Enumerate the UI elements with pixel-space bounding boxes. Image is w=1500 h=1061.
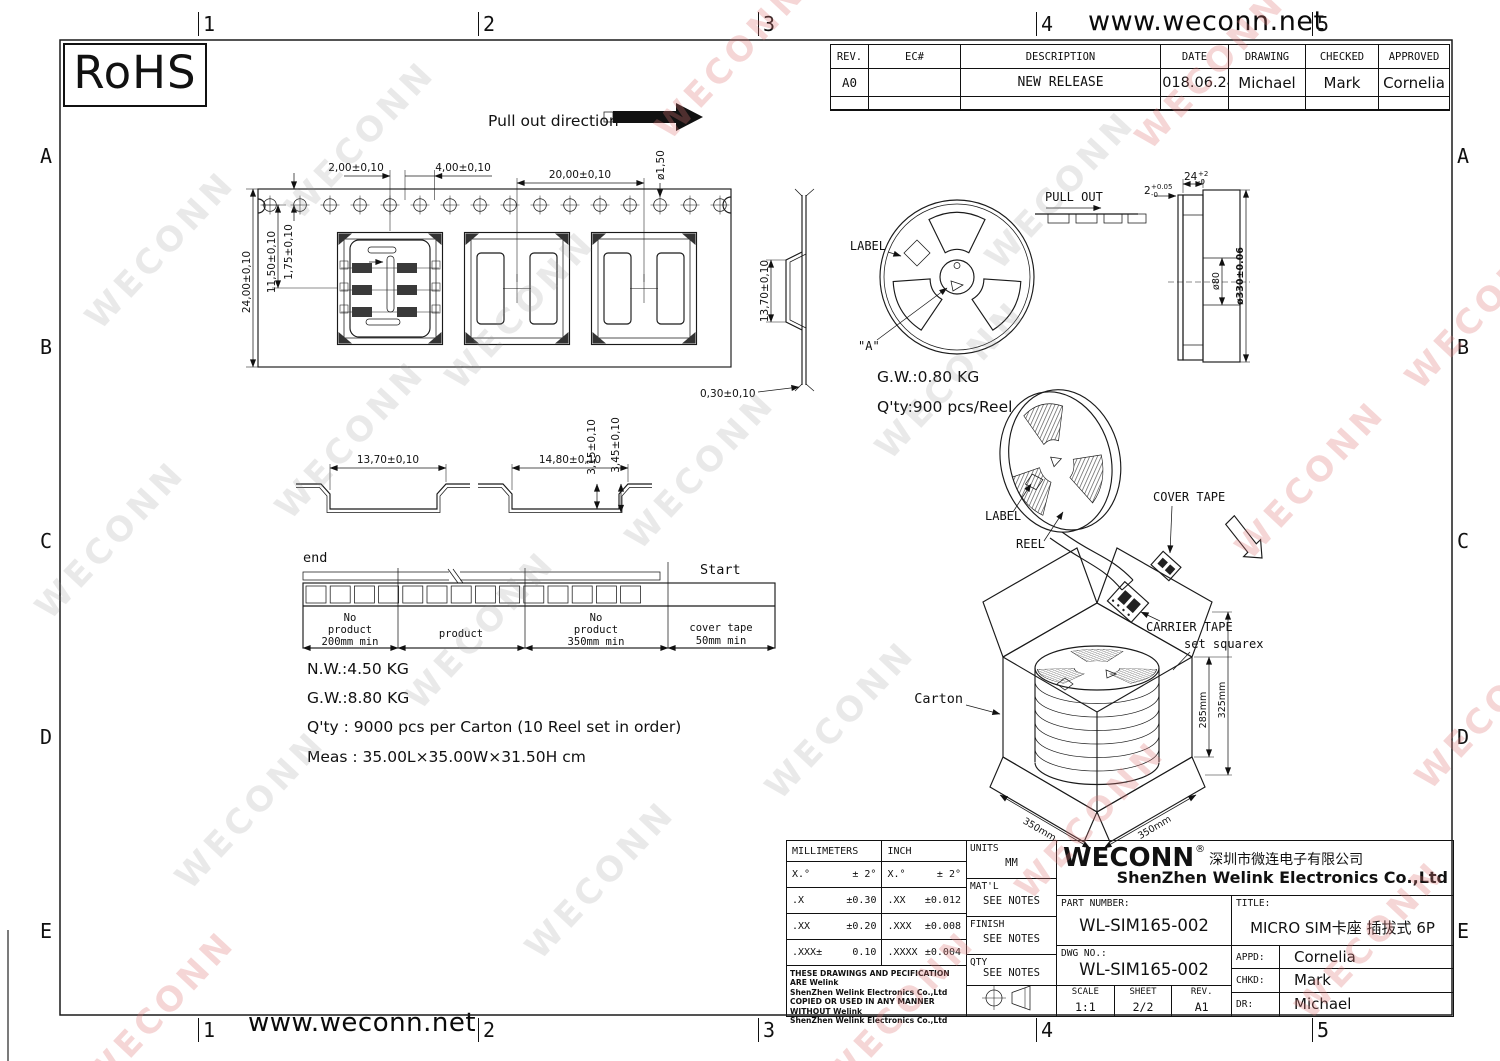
spec-column: UNITSMM MAT'LSEE NOTES FINISHSEE NOTES Q… <box>967 841 1057 1016</box>
projection-symbol-cell <box>967 986 1056 1014</box>
company-name-en: ShenZhen Welink Electronics Co.,Ltd <box>1063 868 1448 887</box>
grid-col-3-top: 3 <box>758 12 775 36</box>
description-value: NEW RELEASE <box>961 69 1161 97</box>
company-name-cn: 深圳市微连电子有限公司 <box>1209 849 1363 869</box>
scale-label: SCALE <box>1057 987 1114 997</box>
tol-cell: .XXX± <box>792 947 822 958</box>
ec-header: EC# <box>869 45 961 69</box>
part-number-label: PART NUMBER: <box>1061 898 1130 909</box>
dr-label: DR: <box>1232 993 1280 1016</box>
sheet-label: SHEET <box>1115 987 1172 997</box>
tol-cell: 0.10 <box>852 947 876 958</box>
grid-col-1-bottom: 1 <box>198 1018 215 1042</box>
grid-row-e-left: E <box>40 919 52 943</box>
tol-cell: ± 2° <box>937 869 961 880</box>
title-block: MILLIMETERS INCH X.°± 2° X.°± 2° .X±0.30… <box>786 840 1454 1017</box>
tol-cell: ±0.012 <box>925 895 961 906</box>
tol-cell: .XX <box>887 895 905 906</box>
tol-cell: .XXXX <box>887 947 917 958</box>
tol-cell: .X <box>792 895 804 906</box>
title-value: MICRO SIM卡座 插拔式 6P <box>1232 917 1453 938</box>
part-number-value: WL-SIM165-002 <box>1057 916 1231 935</box>
tol-cell: ±0.004 <box>925 947 961 958</box>
matl-label: MAT'L <box>970 881 999 892</box>
sheet-value: 2/2 <box>1115 1000 1172 1014</box>
finish-value: SEE NOTES <box>967 933 1056 945</box>
rohs-badge: RoHS <box>63 43 207 107</box>
approved-header: APPROVED <box>1379 45 1449 69</box>
tol-cell: ±0.008 <box>925 921 961 932</box>
dr-value: Michael <box>1280 993 1351 1016</box>
grid-col-2-bottom: 2 <box>478 1018 495 1042</box>
tol-cell: ± 2° <box>852 869 876 880</box>
grid-row-d-right: D <box>1457 725 1469 749</box>
approved-value: Cornelia <box>1379 69 1449 97</box>
checked-value: Mark <box>1306 69 1379 97</box>
grid-row-c-right: C <box>1457 529 1469 553</box>
drawing-sheet: RoHS www.weconn.net www.weconn.net 1 2 3… <box>0 0 1500 1061</box>
grid-col-5-top: 5 <box>1312 12 1329 36</box>
tol-cell: ±0.20 <box>846 921 876 932</box>
checked-header: CHECKED <box>1306 45 1379 69</box>
tol-cell: .XXX <box>887 921 911 932</box>
sheet-rev-label: REV. <box>1172 987 1231 997</box>
tolerance-table: MILLIMETERS INCH X.°± 2° X.°± 2° .X±0.30… <box>787 841 967 1016</box>
site-url-top: www.weconn.net <box>1088 6 1325 37</box>
tol-cell: ±0.30 <box>846 895 876 906</box>
legal-disclaimer: THESE DRAWINGS AND PECIFICATION ARE Weli… <box>787 966 966 1026</box>
finish-label: FINISH <box>970 919 1004 930</box>
dwg-no-value: WL-SIM165-002 <box>1057 960 1231 979</box>
qty-value: SEE NOTES <box>967 967 1056 979</box>
units-label: UNITS <box>970 843 999 854</box>
tol-cell: X.° <box>792 869 810 880</box>
grid-row-a-right: A <box>1457 144 1469 168</box>
revision-table: REV. EC# DESCRIPTION DATE DRAWING CHECKE… <box>830 44 1450 111</box>
title-label: TITLE: <box>1236 898 1270 909</box>
grid-col-4-top: 4 <box>1036 12 1053 36</box>
grid-col-1-top: 1 <box>198 12 215 36</box>
grid-row-b-left: B <box>40 335 52 359</box>
dwg-no-label: DWG NO.: <box>1061 948 1107 959</box>
grid-col-4-bottom: 4 <box>1036 1018 1053 1042</box>
tol-col-inch: INCH <box>882 841 966 861</box>
chkd-label: CHKD: <box>1232 969 1280 991</box>
date-value: 2018.06.24 <box>1161 69 1229 97</box>
grid-row-e-right: E <box>1457 919 1469 943</box>
sheet-rev-value: A1 <box>1172 1000 1231 1014</box>
grid-row-b-right: B <box>1457 335 1469 359</box>
description-header: DESCRIPTION <box>961 45 1161 69</box>
rev-header: REV. <box>831 45 869 69</box>
grid-row-a-left: A <box>40 144 52 168</box>
tol-cell: .XX <box>792 921 810 932</box>
units-value: MM <box>967 857 1056 869</box>
scale-value: 1:1 <box>1057 1000 1114 1014</box>
ec-value <box>869 69 961 97</box>
matl-value: SEE NOTES <box>967 895 1056 907</box>
tol-cell: X.° <box>887 869 905 880</box>
chkd-value: Mark <box>1280 969 1331 991</box>
appd-label: APPD: <box>1232 946 1280 968</box>
appd-value: Cornelia <box>1280 946 1356 968</box>
drawing-value: Michael <box>1229 69 1306 97</box>
grid-col-5-bottom: 5 <box>1312 1018 1329 1042</box>
grid-row-d-left: D <box>40 725 52 749</box>
grid-row-c-left: C <box>40 529 52 553</box>
rev-value: A0 <box>831 69 869 97</box>
drawing-header: DRAWING <box>1229 45 1306 69</box>
site-url-bottom: www.weconn.net <box>248 1008 476 1038</box>
tol-col-mm: MILLIMETERS <box>787 841 882 861</box>
company-block: WECONN ® 深圳市微连电子有限公司 ShenZhen Welink Ele… <box>1057 841 1453 1016</box>
registered-mark-icon: ® <box>1195 844 1205 855</box>
grid-col-2-top: 2 <box>478 12 495 36</box>
date-header: DATE <box>1161 45 1229 69</box>
grid-col-3-bottom: 3 <box>758 1018 775 1042</box>
